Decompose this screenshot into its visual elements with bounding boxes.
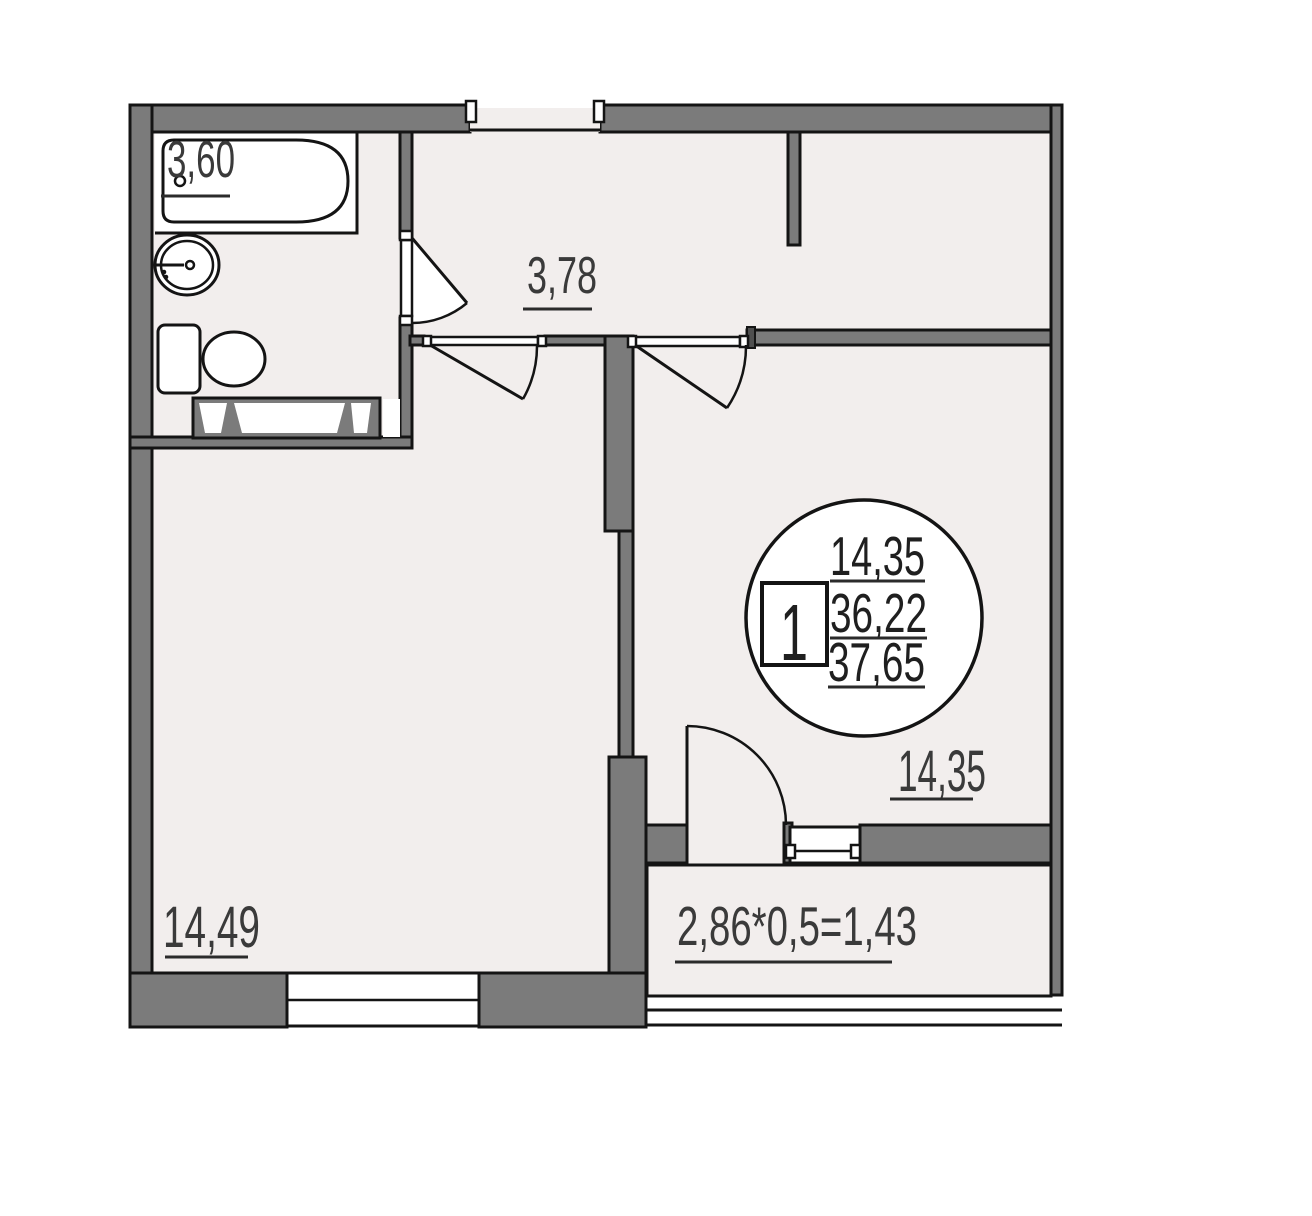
wall-room-right-bottom-b [860,825,1051,863]
toilet-tank [158,325,200,393]
wash-basin [155,235,219,295]
wall-between-rooms-upper [605,336,633,531]
wall-hall-room-right [747,330,1051,345]
stamp-living-area: 14,35 [830,525,925,587]
stamp-area-total: 37,65 [828,631,925,693]
entrance-opening [466,101,604,132]
wall-bathroom-right-upper [400,132,412,238]
basin-tap-dot-2 [164,275,169,280]
balcony-window-cap-right [851,845,860,858]
balcony-area-label: 2,86*0,5=1,43 [677,895,917,957]
basin-faucet-knob [186,261,194,269]
entrance-jamb-left [466,101,476,122]
apartment-stamp: 1 14,35 36,22 37,65 [746,500,982,736]
wall-hall-room-left-b [545,336,609,345]
wall-top-right [600,105,1062,132]
basin-tap-dot-1 [162,270,167,275]
balcony-window-frame [790,827,860,863]
bathroom-door-jamb-top [400,231,412,240]
entrance-gap [470,108,600,132]
wall-top-left [130,105,470,132]
wall-bottom-left-a [130,973,287,1027]
room-right-door-frame [635,337,740,346]
duct-vent-middle [234,403,345,433]
balcony-window-cap-left [786,845,795,858]
room-right-area-label: 14,35 [898,739,986,804]
hallway-area-label: 3,78 [527,247,597,305]
window [287,973,479,1026]
toilet-bowl [203,332,265,386]
wall-bottom-left-b [479,973,646,1027]
floor-plan: 1 14,35 36,22 37,65 3,60 3,78 14,49 14,3… [0,0,1312,1216]
ventilation-duct [193,398,400,438]
wall-niche-partition [788,132,800,245]
room-left-door-frame [430,337,538,345]
rooms-count: 1 [780,588,808,677]
bathroom-door-jamb-bottom [400,316,412,325]
duct-side-gap [383,399,400,437]
room-left-door-jamb-left [423,336,431,346]
entrance-jamb-right [594,101,604,122]
wall-between-rooms-middle [619,531,633,757]
bathroom-area-label: 3,60 [167,131,235,189]
wall-right-outer [1051,105,1062,995]
wall-left-outer [130,105,152,1027]
bathroom-door-frame [401,240,412,316]
room-left-area-label: 14,49 [163,895,260,960]
room-left-door-jamb-right [538,336,546,346]
